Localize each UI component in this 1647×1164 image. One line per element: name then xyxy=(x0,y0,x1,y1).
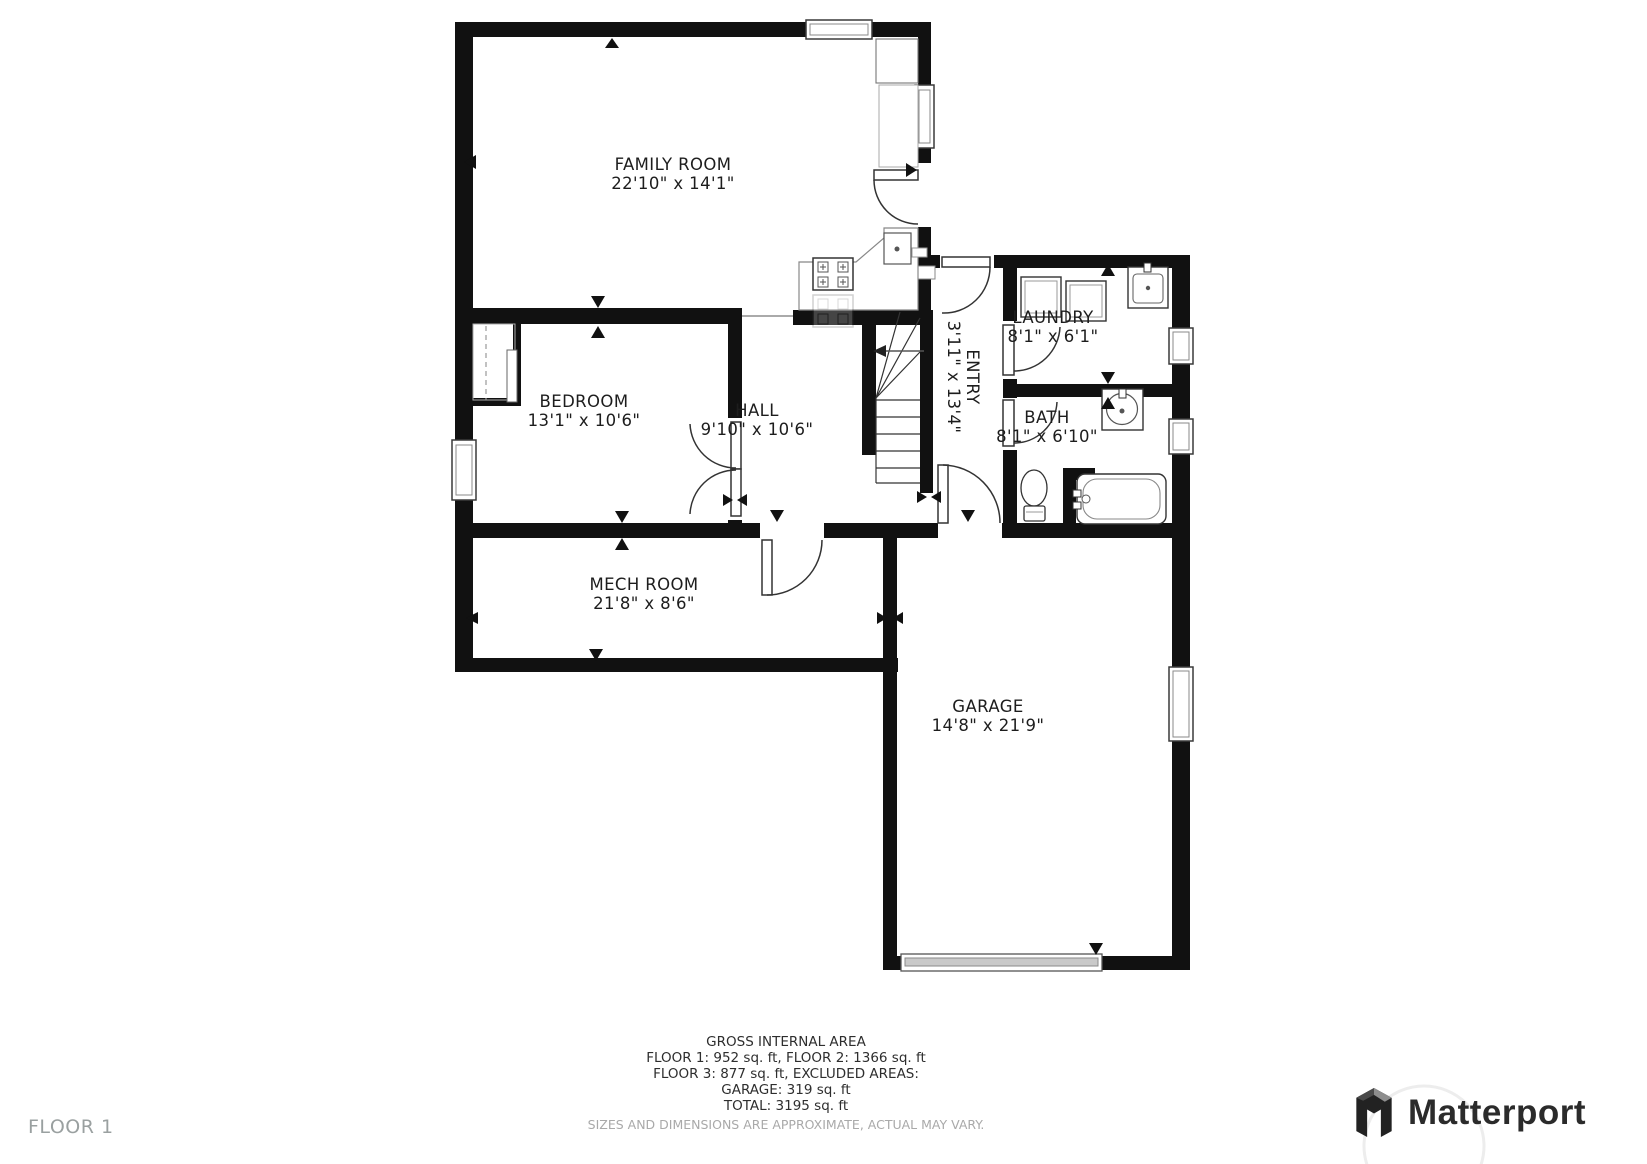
room-name: FAMILY ROOM xyxy=(611,155,735,174)
bedroom-closet xyxy=(473,324,517,402)
dimension-ticks xyxy=(464,38,1115,955)
room-label-garage: GARAGE 14'8" x 21'9" xyxy=(932,697,1045,735)
disclaimer-text: SIZES AND DIMENSIONS ARE APPROXIMATE, AC… xyxy=(588,1117,985,1133)
room-dims: 8'1" x 6'10" xyxy=(996,427,1098,446)
room-dims: 8'1" x 6'1" xyxy=(1008,327,1099,346)
laundry-sink xyxy=(1128,263,1168,308)
room-name: MECH ROOM xyxy=(589,575,698,594)
window-frames xyxy=(456,24,1189,737)
toilet xyxy=(1021,470,1047,521)
floor-label: FLOOR 1 xyxy=(28,1116,114,1138)
room-label-mech-room: MECH ROOM 21'8" x 8'6" xyxy=(589,575,698,613)
matterport-logo: Matterport xyxy=(1352,1086,1586,1139)
area-summary-line: FLOOR 1: 952 sq. ft, FLOOR 2: 1366 sq. f… xyxy=(588,1050,985,1066)
area-summary-line: GARAGE: 319 sq. ft xyxy=(588,1082,985,1098)
area-summary: GROSS INTERNAL AREA FLOOR 1: 952 sq. ft,… xyxy=(588,1034,985,1133)
room-dims: 21'8" x 8'6" xyxy=(589,594,698,613)
room-label-family-room: FAMILY ROOM 22'10" x 14'1" xyxy=(611,155,735,193)
room-name: BATH xyxy=(996,408,1098,427)
matterport-m-icon xyxy=(1352,1086,1396,1139)
room-dims: 3'11" x 13'4" xyxy=(944,321,963,434)
room-label-entry: ENTRY 3'11" x 13'4" xyxy=(944,321,982,434)
room-name: BEDROOM xyxy=(528,392,641,411)
room-label-bath: BATH 8'1" x 6'10" xyxy=(996,408,1098,446)
room-name: ENTRY xyxy=(963,321,982,434)
room-name: LAUNDRY xyxy=(1008,308,1099,327)
windows xyxy=(452,20,1193,741)
room-label-hall: HALL 9'10" x 10'6" xyxy=(701,401,814,439)
room-label-laundry: LAUNDRY 8'1" x 6'1" xyxy=(1008,308,1099,346)
room-dims: 14'8" x 21'9" xyxy=(932,716,1045,735)
room-name: GARAGE xyxy=(932,697,1045,716)
floorplan-page: FAMILY ROOM 22'10" x 14'1" BEDROOM 13'1"… xyxy=(0,0,1647,1164)
room-dims: 13'1" x 10'6" xyxy=(528,411,641,430)
room-name: HALL xyxy=(701,401,814,420)
family-room-cabinets xyxy=(876,39,918,167)
staircase xyxy=(876,312,920,483)
bath-sink xyxy=(1102,389,1143,430)
matterport-wordmark: Matterport xyxy=(1408,1093,1586,1133)
stove-reflection xyxy=(813,295,853,327)
room-dims: 22'10" x 14'1" xyxy=(611,174,735,193)
stove xyxy=(813,258,853,290)
area-summary-total: TOTAL: 3195 sq. ft xyxy=(588,1098,985,1114)
floorplan-drawing xyxy=(0,0,1647,1164)
area-summary-line: FLOOR 3: 877 sq. ft, EXCLUDED AREAS: xyxy=(588,1066,985,1082)
area-summary-title: GROSS INTERNAL AREA xyxy=(588,1034,985,1050)
room-label-bedroom: BEDROOM 13'1" x 10'6" xyxy=(528,392,641,430)
bathtub xyxy=(1073,474,1166,524)
room-dims: 9'10" x 10'6" xyxy=(701,420,814,439)
garage-door xyxy=(901,954,1102,971)
